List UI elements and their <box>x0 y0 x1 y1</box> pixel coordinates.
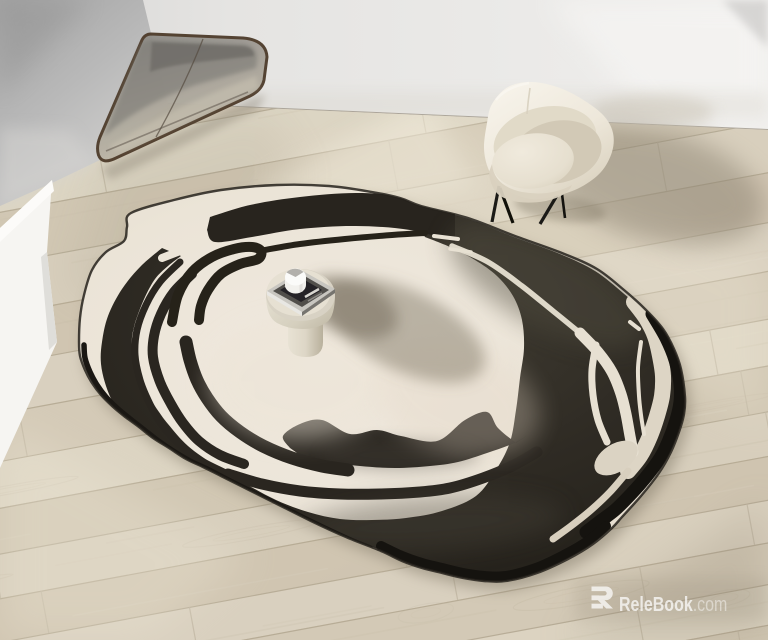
svg-text:ReleBook.com: ReleBook.com <box>619 592 727 615</box>
